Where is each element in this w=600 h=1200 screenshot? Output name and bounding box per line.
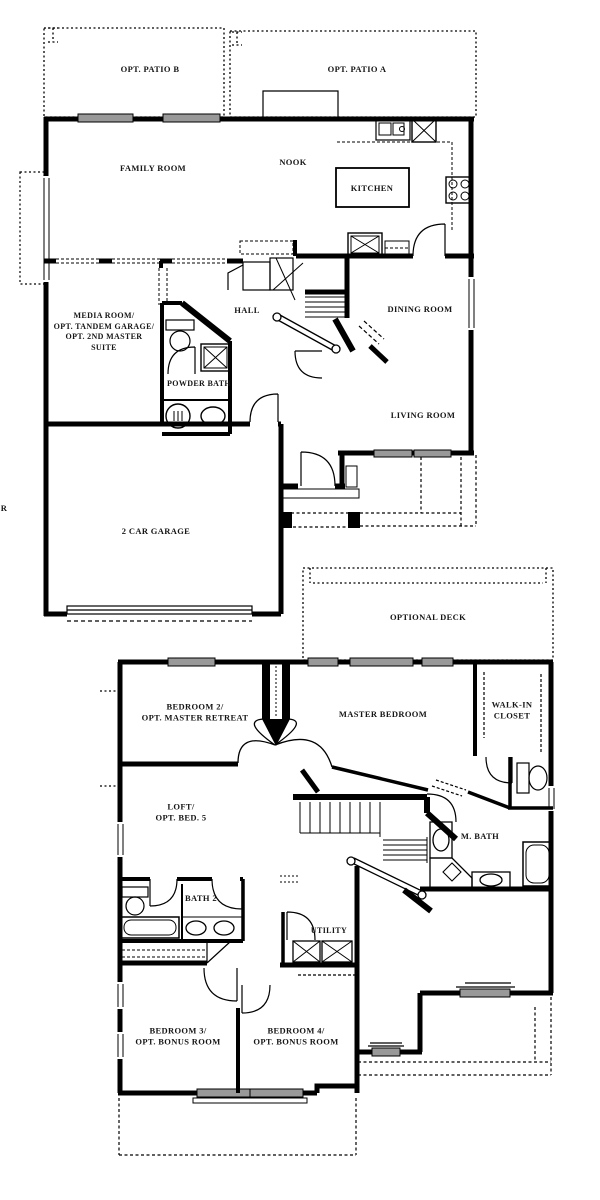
family-room-side-window <box>42 176 50 282</box>
floorplan-drawing <box>0 0 600 1200</box>
stairs-second-floor <box>293 797 456 911</box>
garage-door <box>67 606 252 621</box>
hall-shelves <box>280 876 298 882</box>
room-label-bedroom2: BEDROOM 2/ OPT. MASTER RETREAT <box>142 702 249 723</box>
master-tub-icon <box>523 842 552 886</box>
room-label-nook: NOOK <box>279 157 306 168</box>
porch-roof-dashes <box>282 455 476 527</box>
room-label-opt-patio-a: OPT. PATIO A <box>328 64 387 75</box>
room-label-loft: LOFT/ OPT. BED. 5 <box>156 802 207 823</box>
room-label-utility: UTILITY <box>311 926 347 937</box>
media-room-opening <box>159 261 167 305</box>
room-label-m-bath: M. BATH <box>461 831 499 842</box>
dining-room-window <box>467 277 475 330</box>
floorplan-page: OPT. PATIO B OPT. PATIO A FAMILY ROOM NO… <box>0 0 600 1200</box>
powder-toilet-icon <box>166 320 194 351</box>
room-label-media-room: MEDIA ROOM/ OPT. TANDEM GARAGE/ OPT. 2ND… <box>54 311 155 353</box>
hall-double-doors <box>238 662 332 792</box>
pantry-icon <box>348 233 382 256</box>
left-roof-dashes <box>100 691 118 786</box>
room-label-bath2: BATH 2 <box>185 893 217 904</box>
dining-opening <box>359 321 387 362</box>
nook-bay-window <box>263 91 338 117</box>
front-door <box>301 452 335 486</box>
hall-door <box>295 351 322 378</box>
entry <box>281 452 360 528</box>
refrigerator-icon <box>412 119 436 142</box>
room-label-kitchen: KITCHEN <box>351 183 394 194</box>
room-label-walk-in-closet: WALK-IN CLOSET <box>492 700 533 721</box>
kitchen-sink-icon <box>376 119 410 140</box>
shower-icon <box>201 344 230 371</box>
room-label-master-bedroom: MASTER BEDROOM <box>339 709 427 720</box>
second-floor-plan <box>100 568 555 1155</box>
room-label-hall: HALL <box>234 305 260 316</box>
master-toilet-room <box>486 757 553 808</box>
media-niche-outline <box>20 172 44 284</box>
bath2-tub-icon <box>121 917 179 938</box>
garage-entry-door <box>250 394 278 422</box>
bath2-toilet-icon <box>122 887 148 915</box>
room-label-opt-patio-b: OPT. PATIO B <box>121 64 180 75</box>
bath2-room <box>118 879 243 963</box>
utility-room <box>280 912 357 975</box>
room-label-dining-room: DINING ROOM <box>387 304 452 315</box>
hall-closets <box>228 241 303 300</box>
room-label-living-room: LIVING ROOM <box>391 410 456 421</box>
master-toilet-icon <box>517 763 547 793</box>
room-label-bedroom4: BEDROOM 4/ OPT. BONUS ROOM <box>253 1026 338 1047</box>
room-label-garage: 2 CAR GARAGE <box>122 526 190 537</box>
lower-roof-dashes <box>119 997 551 1155</box>
room-label-bedroom3: BEDROOM 3/ OPT. BONUS ROOM <box>135 1026 220 1047</box>
living-room-windows <box>374 450 451 457</box>
edge-letter: R <box>1 503 8 514</box>
room-label-powder-bath: POWDER BATH <box>167 379 231 390</box>
floor2-top-windows <box>168 658 453 666</box>
bath2-sinks-icon <box>182 917 243 935</box>
stove-icon <box>446 177 472 203</box>
room-label-family-room: FAMILY ROOM <box>120 163 186 174</box>
washer-dryer-icon <box>293 941 352 962</box>
stairs-first-floor <box>273 256 353 353</box>
family-room-lower-wall <box>44 259 243 263</box>
room-label-optional-deck: OPTIONAL DECK <box>390 612 466 623</box>
powder-bath-room <box>162 303 230 434</box>
